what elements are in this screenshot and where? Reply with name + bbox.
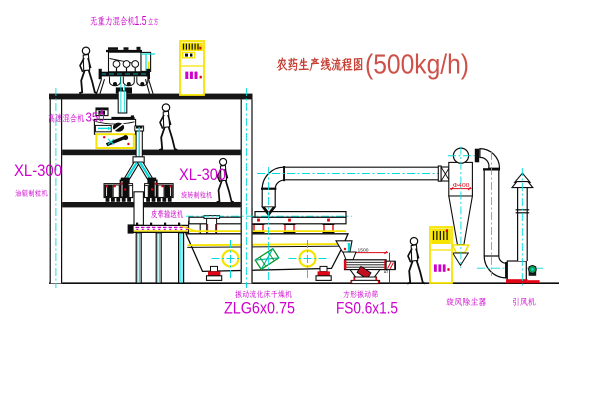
svg-text:1.5: 1.5: [135, 13, 147, 28]
svg-text:XL-300: XL-300: [14, 161, 62, 180]
svg-text:(500kg/h): (500kg/h): [365, 49, 469, 80]
svg-text:350: 350: [86, 111, 105, 125]
svg-text:FS0.6x1.5: FS0.6x1.5: [336, 300, 398, 318]
svg-text:1500: 1500: [358, 247, 369, 253]
svg-text:ZLG6x0.75: ZLG6x0.75: [224, 300, 295, 318]
svg-text:XL-300: XL-300: [179, 165, 226, 184]
